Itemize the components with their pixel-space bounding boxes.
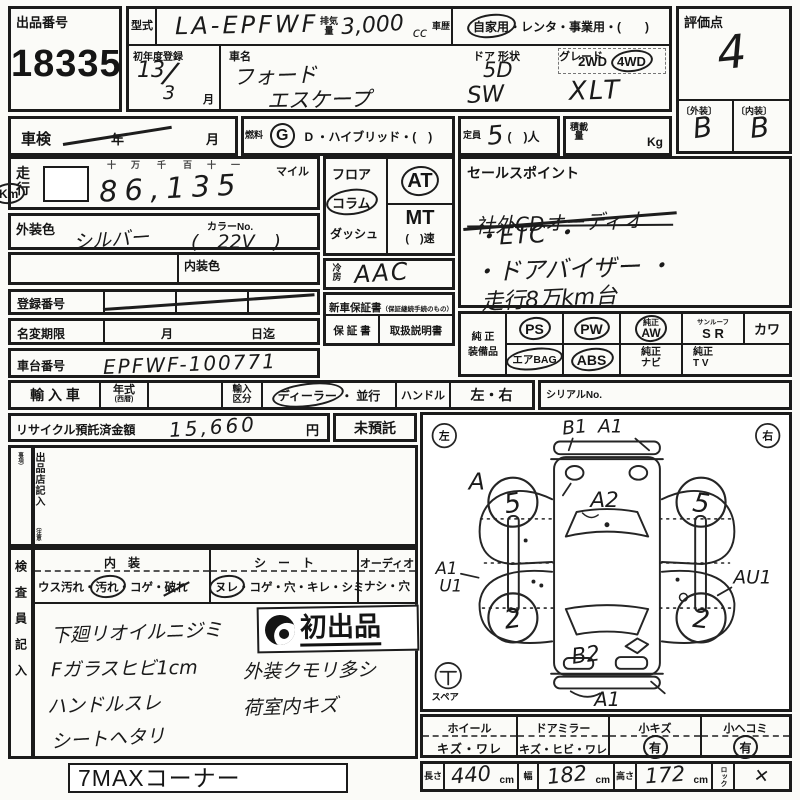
shaken-year-label: 年 [111,129,124,148]
stamp-logo-icon [265,615,296,646]
shaken-box: 車検 年 月 [8,116,238,156]
taillight-right [616,657,647,669]
annotation-b1: B1 [561,416,588,439]
fuel-box: 燃料 G D ・ハイブリッド・( ) [241,116,455,156]
equip-aw-option: 純正AW [641,319,660,339]
chassis-number-value: EPFWF-100771 [103,349,278,379]
sales-points-title: セールスポイント [461,159,789,183]
ac-box: 冷房 AAC [323,258,455,290]
annotation-b2: B2 [570,641,602,670]
small-scratch-header: 小キズ [610,717,700,737]
note-oil-seepage: 下廻リオイルニジミ [51,615,223,648]
handle-label: ハンドル [397,383,451,407]
height-label: 高さ [615,764,637,789]
exterior-color-value: シルバー [72,222,150,254]
small-scratch-value: 有 [649,739,661,756]
equipment-label-2: 装備品 [461,343,505,358]
equip-navi-option: 純正ナビ [621,345,683,374]
history-private-option: 自家用 [473,18,509,35]
displacement-unit: cc [413,26,427,41]
capacity-suffix: ( )人 [508,128,540,145]
seat-header: シ ー ト [211,550,357,572]
width-label: 幅 [519,764,539,789]
seat-opt-circled: ヌレ [215,579,238,595]
registration-number-box: 登録番号 [8,289,320,315]
equip-sr-option: S R [683,326,743,341]
note-glass-crack: Fガラスヒビ1cm [51,653,198,683]
spare-label: スペア [432,692,459,702]
fuel-lid-mark [626,638,649,653]
load-box: 積載量 Kg [563,116,672,156]
import-dealer-option: ディーラー [278,387,337,404]
equip-leather-option: カワ [754,319,780,338]
seller-notes-area [32,445,418,547]
recycle-box: リサイクル預託済金額 15,660 円 [8,413,330,442]
equip-pw-option: PW [580,321,603,337]
shaken-month-label: 月 [206,129,219,148]
recycle-yen: 円 [306,420,319,439]
interior-color-box: 内装色 [8,252,320,285]
history-other-options: ・レンタ・事業用・( ) [509,18,649,35]
sales-points-box: セールスポイント 社外CDオーディオ ・ETC ・ ・ドアバイザー ・ 走行8万… [458,156,792,308]
door-count-value: 5D [483,58,513,82]
interior-header: 内 装 [35,550,209,572]
annotation-au1-right: AU1 [732,568,771,589]
note-exterior-dull: 外装クモリ多シ [243,655,376,684]
small-dent-header: 小ヘコミ [702,717,789,737]
annotation-a2: A2 [588,488,618,513]
cm-unit: cm [500,775,514,786]
seller-section-strip: 出品店記入 （注意事項） [8,445,34,547]
damage-diagram-box: 左 右 スペア B1 A1 A A2 A1 U1 AU1 B2 A1 5 5 2… [420,412,792,712]
fuel-gasoline-option: G [276,127,288,145]
annotation-u1-left: U1 [439,576,462,595]
stamp-text: 初出品 [300,611,382,646]
warranty-book-label: 保 証 書 [333,323,370,338]
new-car-warranty-label: 新車保証書 [329,302,382,314]
rating-value: 4 [714,24,749,81]
wheel-mark-rear-right: 2 [691,603,711,636]
wheel-mark-front-right: 5 [691,487,712,520]
car-top-view-diagram: 左 右 スペア B1 A1 A A2 A1 U1 AU1 B2 A1 5 5 2… [423,415,789,709]
mirror-options: キズ・ヒビ・ワレ [518,737,608,757]
rear-window [566,605,648,634]
drive-type-box: 2WD 4WD [558,48,666,74]
digit-marker: 万 [131,161,140,170]
shift-dash-option: ダッシュ [326,213,386,242]
digit-marker: 千 [157,161,166,170]
mileage-value: 86,135 [98,167,243,208]
drive-4wd-option: 4WD [617,54,646,69]
wheel-options: キズ・ワレ [423,737,516,757]
capacity-label: 定員 [463,131,481,140]
new-car-warranty-note: （保証継続手続のもの） [382,306,454,313]
lock-value: ✕ [753,765,771,788]
import-year-label: 年式(西暦) [101,383,149,407]
note-cargo-scratch: 荷室内キズ [243,690,339,720]
interior-opt-circled: 汚れ [96,579,119,595]
load-label: 積載量 [570,123,588,142]
grade-value: XLT [568,75,621,107]
import-parallel-option: ・ 並行 [341,387,380,404]
seat-opt-rest: ・コゲ・穴・キレ・シミ [238,582,365,594]
wheel-mark-front-left: 5 [502,487,524,520]
interior-color-label: 内装色 [184,259,220,273]
warranty-box: 新車保証書（保証継続手続のもの） 保 証 書 取扱説明書 [323,292,455,346]
note-seat-sag: シートヘタリ [50,721,165,754]
annotation-a1-bottom: A1 [592,688,620,709]
length-label: 長さ [423,764,445,789]
mileage-checkbox [43,166,89,202]
first-registration-month: 3 [163,82,175,104]
mirror-header: ドアミラー [518,717,608,737]
manual-label: 取扱説明書 [390,323,443,338]
note-steering-wear: ハンドルスレ [47,688,162,719]
mileage-label: 走行 [16,165,34,197]
registration-number-label: 登録番号 [17,295,65,312]
interior-opt-mid: ・コゲ・ [119,582,165,594]
handle-value: 左・右 [451,383,532,407]
right-marker-label: 右 [762,430,773,443]
car-model-value: エスケープ [267,83,371,115]
fuel-label: 燃料 [244,131,264,140]
lock-label: ロック [718,766,728,787]
first-listing-stamp: 初出品 [257,605,420,654]
annotation-a1-top: A1 [597,417,623,438]
headlight-right [630,466,648,480]
interior-grade-value: B [748,110,771,145]
sales-point-etc: ・ETC ・ [474,212,578,252]
serial-number-label: シリアルNo. [541,383,602,401]
shift-box: フロア コラム ダッシュ AT MT ( )速 [323,156,455,256]
import-class-label: 輸入区分 [223,383,263,407]
recycle-label: リサイクル預託済金額 [16,421,135,438]
equipment-label-1: 純 正 [461,328,505,343]
first-registration-year: 13 [137,58,165,83]
not-deposited-label: 未預託 [354,418,396,438]
equip-ps-option: PS [525,321,544,337]
transmission-at-option: AT [407,170,432,193]
capacity-box: 定員 5 ( )人 [458,116,560,156]
name-change-box: 名変期限 月 日迄 [8,318,320,345]
inspector-section-strip: 検査員記入 [8,547,34,759]
model-code-value: LA-EPFWF [175,10,319,40]
displacement-label: 排気量 [319,9,339,44]
name-change-month: 月 [161,325,173,342]
name-change-day: 日迄 [251,325,275,342]
corner-footer-box: 7MAXコーナー [68,763,348,793]
not-deposited-box: 未預託 [333,413,417,442]
ac-label: 冷房 [329,264,345,283]
headlight-left [566,466,584,480]
model-code-label: 型式 [129,9,157,44]
mileage-km-unit: Km [0,187,18,201]
shaken-label: 車検 [21,128,51,149]
annotation-a: A [467,467,485,495]
month-suffix-label: 月 [203,91,214,107]
equipment-box: 純 正 装備品 PS PW 純正AW サンルーフ S R カワ エアBAG AB… [458,311,792,377]
registration-strike-line [103,293,315,311]
wheel-mark-rear-left: 2 [502,603,523,636]
auction-sheet: 出品番号 18335 型式 LA-EPFWF 排気量 3,000 cc 車歴 自… [0,0,800,800]
shift-floor-option: フロア [326,159,386,183]
width-value: 182 [546,761,588,789]
equip-tv-option: 純正T V [683,345,789,374]
inspector-content-box: 内 装 ウス汚れ・汚れ・コゲ・破れ シ ー ト ヌレ・コゲ・穴・キレ・シミ オー… [32,547,418,759]
interior-opt-struck: 破れ [165,582,188,594]
exterior-color-label: 外装色 [16,219,55,238]
fuel-other-options: D ・ハイブリッド・( ) [304,128,432,145]
equip-airbag-option: エアBAG [512,352,556,367]
small-dent-value: 有 [739,739,751,756]
length-value: 440 [450,761,492,788]
audio-header: オーディオ [359,550,415,572]
body-shape-value: SW [466,81,505,109]
auction-number-box: 出品番号 18335 [8,6,122,112]
color-no-value: ( 22V ) [191,227,281,254]
rear-bumper [554,677,660,689]
exterior-color-box: 外装色 シルバー カラーNo. ( 22V ) [8,213,320,250]
corner-footer-text: 7MAXコーナー [70,765,241,791]
name-change-label: 名変期限 [17,325,65,342]
capacity-value: 5 [486,120,505,151]
inspector-notes-area: 初出品 下廻リオイルニジミ Fガラスヒビ1cm ハンドルスレ シートヘタリ 外装… [35,604,415,756]
transmission-mt-option: MT [388,207,452,230]
digit-marker: 十 [107,161,116,170]
mileage-box: 走行 十 万 千 百 十 一 86,135 マイル Km [8,156,320,210]
transmission-speed: ( )速 [388,230,452,246]
interior-opt-pre: ウス汚れ・ [38,582,96,594]
serial-number-box: シリアルNo. [538,380,792,410]
vehicle-header-box: 型式 LA-EPFWF 排気量 3,000 cc 車歴 自家用・レンタ・事業用・… [126,6,672,112]
equip-abs-option: ABS [577,352,607,368]
recycle-amount: 15,660 [168,412,257,442]
auction-number-value: 18335 [11,43,119,86]
dimensions-row: 長さ 440 cm 幅 182 cm 高さ 172 cm ロック ✕ [420,761,792,792]
wheel-header: ホイール [423,717,516,737]
condition-table: ホイール キズ・ワレ ドアミラー キズ・ヒビ・ワレ 小キズ 有 小ヘコミ 有 [420,714,792,758]
cm-unit: cm [694,775,708,786]
import-car-label: 輸 入 車 [11,383,101,407]
chassis-number-box: 車台番号 EPFWF-100771 [8,348,320,378]
chassis-number-label: 車台番号 [17,357,65,374]
load-unit: Kg [647,135,663,149]
equip-sunroof-small-label: サンルーフ [683,316,743,326]
auction-number-label: 出品番号 [11,9,119,31]
mileage-mile-unit: マイル [276,163,309,179]
audio-options: ナシ・穴 [359,572,415,594]
annotation-a1-left: A1 [434,559,457,578]
drive-2wd-option: 2WD [578,54,607,69]
import-row: 輸 入 車 年式(西暦) 輸入区分 ディーラー ・ 並行 ハンドル 左・右 [8,380,535,410]
import-year-value-cell [149,383,223,407]
rating-box: 評価点 4 〔外装〕 B 〔内装〕 B [676,6,792,154]
inspector-vertical-label: 検査員記入 [13,560,30,690]
height-value: 172 [644,762,686,789]
displacement-value: 3,000 [340,11,405,40]
history-label: 車歴 [431,9,451,44]
shift-column-option: コラム [332,193,371,212]
cm-unit: cm [596,775,610,786]
left-marker-label: 左 [438,430,450,443]
ac-value: AAC [353,257,410,289]
